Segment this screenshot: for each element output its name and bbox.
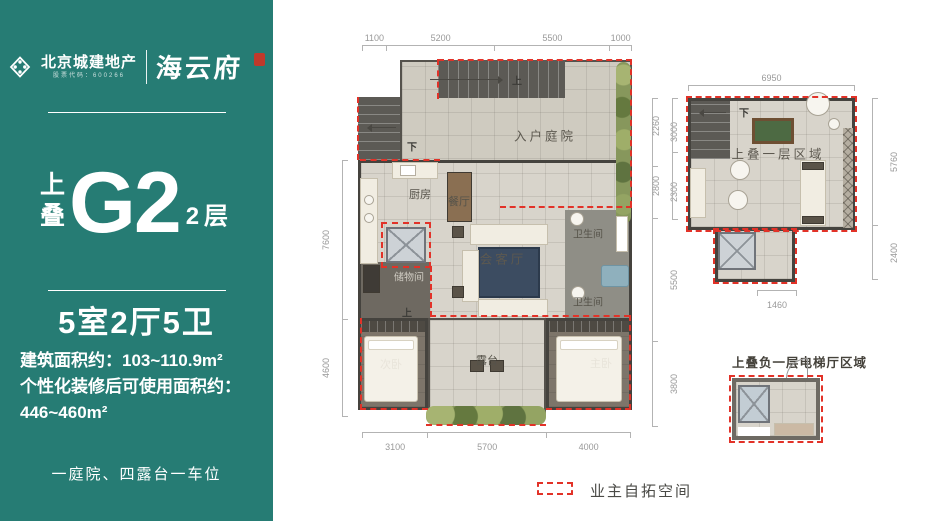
unit-prefix: 上 叠: [40, 170, 65, 233]
room-label-bath-lower: 卫生间: [573, 294, 603, 309]
developer-name: 北京城建地产: [41, 55, 137, 70]
right-hedge: [616, 62, 631, 224]
developer-brand: 北京城建地产 股票代码：600266: [41, 55, 137, 79]
room-label-bath-upper: 卫生间: [573, 226, 603, 241]
upper-dash-ext: [713, 228, 797, 284]
rooms-summary: 5室2厅5卫: [0, 297, 273, 342]
upper-dims-right: 5760 2400: [872, 98, 878, 280]
room-label-courtyard: 入户庭院: [514, 126, 576, 145]
dash-courtyard-right: [630, 59, 632, 207]
main-dims-left: 7600 4600: [342, 160, 348, 417]
upper-dims-left: 2260 2800: [672, 98, 678, 220]
room-label-terrace: 露台: [476, 352, 498, 368]
dash-lowerband-top: [430, 315, 630, 317]
basement-plan: 上叠负一层电梯厅区域: [700, 345, 900, 475]
area-line-2: 个性化装修后可使用面积约：: [20, 374, 265, 400]
poster: 北京城建地产 股票代码：600266 海云府 上 叠 G2 2层 5室2厅5卫 …: [0, 0, 938, 527]
upper-stair-down-label: 下: [739, 105, 749, 120]
toilet-upper: [570, 212, 584, 226]
room-label-dining: 餐厅: [448, 193, 470, 209]
upper-dims-top: 6950: [688, 85, 855, 91]
main-dims-bottom: 3100 5700 4000: [362, 432, 631, 438]
area-line-3: 446~460m²: [20, 400, 265, 426]
room-label-living: 会客厅: [480, 249, 527, 268]
bath-vanity: [616, 216, 628, 252]
upper-dims-bottom: 1460: [757, 290, 797, 296]
room-label-kitchen: 厨房: [409, 186, 431, 202]
area-line-1: 建筑面积约：103~110.9m²: [20, 348, 265, 374]
master-wardrobe: [549, 321, 629, 332]
stair-down-arrow: [368, 127, 396, 128]
elevator-dash-outline: [381, 222, 431, 268]
developer-logo-icon: [8, 55, 32, 79]
logo-divider: [146, 50, 147, 84]
legend-label: 业主自拓空间: [590, 480, 692, 501]
developer-stock-code: 股票代码：600266: [53, 73, 125, 79]
dash-leftstair: [357, 97, 359, 160]
dash-store-right: [430, 266, 432, 317]
dash-entry-bottom: [500, 206, 632, 208]
main-floor-plan: 上 下 上 入户庭院 厨房 餐厅 会客厅 卫生间 卫生间 储物间 次卧 露台 主…: [320, 20, 680, 470]
stair-up-arrow: [430, 79, 502, 80]
sofa-top: [470, 224, 548, 245]
dash-master-bottom: [546, 408, 631, 410]
stove-burner-1: [364, 195, 374, 205]
upper-stair-arrow: [700, 112, 726, 113]
dash-bedroom2-left: [360, 318, 362, 410]
bottom-hedge: [426, 406, 546, 425]
unit-prefix-char-2: 叠: [40, 201, 65, 232]
logo-row: 北京城建地产 股票代码：600266 海云府: [0, 48, 273, 85]
sidebar: 北京城建地产 股票代码：600266 海云府 上 叠 G2 2层 5室2厅5卫 …: [0, 0, 273, 521]
upper-title: 上叠一层区域: [731, 144, 824, 163]
storage-shelf: [363, 265, 380, 293]
unit-floor: 2层: [186, 196, 233, 231]
unit-prefix-char-1: 上: [40, 170, 65, 201]
room-label-master: 主卧: [590, 355, 612, 371]
dash-courtyard-top: [438, 59, 632, 61]
area-text: 建筑面积约：103~110.9m² 个性化装修后可使用面积约： 446~460m…: [20, 348, 265, 426]
dash-kitchen-top: [360, 159, 440, 161]
kitchen-sink: [400, 165, 416, 176]
project-name: 海云府: [155, 48, 245, 85]
bedroom2-wardrobe: [361, 321, 425, 332]
stair-down-label: 下: [407, 139, 417, 154]
slogan: 一庭院、四露台一车位: [0, 463, 273, 484]
side-table-1: [452, 226, 464, 238]
unit-headline: 上 叠 G2 2层: [0, 168, 273, 239]
upper-dash-main: [686, 96, 857, 232]
project-seal-icon: [254, 53, 265, 66]
stair-up-label: 上: [512, 73, 522, 88]
bathtub-blue: [601, 265, 629, 287]
main-dims-top: 1100 5200 5500 1000: [362, 45, 632, 51]
dash-bedroom2-bottom: [360, 408, 428, 410]
divider-line-top: [48, 112, 226, 113]
room-label-bedroom2: 次卧: [380, 356, 402, 372]
master-bed: [556, 336, 622, 402]
side-table-2: [452, 286, 464, 298]
divider-line-bottom: [48, 290, 226, 291]
legend-swatch: [537, 482, 573, 495]
unit-code: G2: [69, 168, 180, 239]
stair-up2-label: 上: [402, 305, 412, 320]
sofa-left: [462, 250, 479, 302]
dash-terrace-bottom: [426, 424, 546, 426]
basement-dash-outline: [729, 375, 823, 443]
bedroom2-pillow: [368, 340, 414, 350]
room-label-storage: 储物间: [394, 269, 424, 284]
stove-burner-2: [364, 213, 374, 223]
upper-level-plan: 下 上叠一层区域 6950 2260 2800 5760 2400 1460: [660, 60, 910, 320]
master-pillow: [560, 340, 618, 350]
main-dims-right: 3000 2300 5500 3800: [652, 98, 658, 427]
dash-lowerband-right: [629, 315, 631, 410]
